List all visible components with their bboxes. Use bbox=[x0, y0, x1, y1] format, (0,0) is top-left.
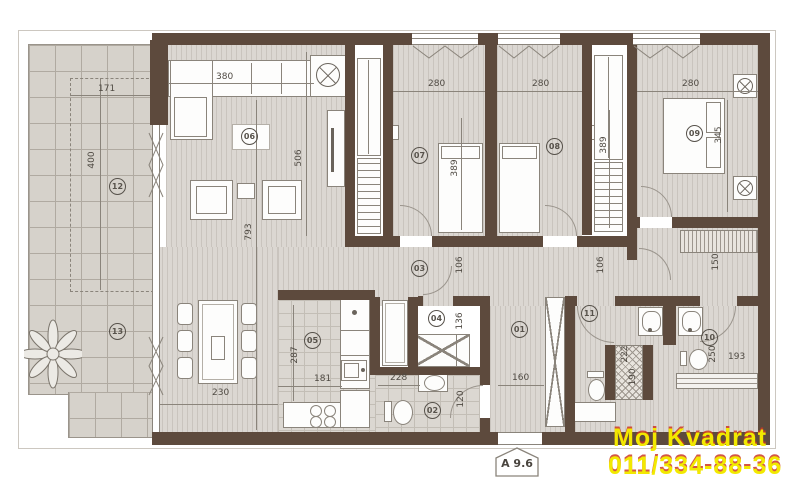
room-number-06: 06 bbox=[241, 128, 258, 145]
dim-287: 287 bbox=[290, 343, 300, 367]
dim-389-room07: 389 bbox=[450, 156, 460, 180]
wall bbox=[345, 45, 355, 247]
dining-table-center bbox=[211, 336, 225, 360]
wall bbox=[370, 297, 380, 368]
dim-793: 793 bbox=[244, 220, 254, 244]
dim-280-room08: 280 bbox=[532, 79, 549, 89]
sofa-divider bbox=[281, 63, 282, 94]
dim-106-corridor: 106 bbox=[455, 253, 465, 277]
wall bbox=[582, 45, 592, 235]
room-number-01: 01 bbox=[511, 321, 528, 338]
wall bbox=[565, 297, 575, 432]
dim-171: 171 bbox=[98, 84, 115, 94]
wall bbox=[152, 33, 412, 45]
wall bbox=[418, 296, 423, 306]
sliding-door-icon bbox=[148, 336, 164, 396]
window-opening-icon bbox=[412, 45, 478, 60]
wall bbox=[370, 367, 488, 375]
kitchen-counter-divider bbox=[341, 355, 369, 356]
wall bbox=[577, 236, 637, 247]
wall bbox=[615, 296, 700, 306]
dim-line bbox=[393, 91, 485, 92]
wall bbox=[637, 217, 640, 228]
dim-120: 120 bbox=[456, 387, 466, 411]
armchair-cushion bbox=[196, 186, 227, 214]
dim-190: 190 bbox=[628, 365, 638, 389]
dim-150: 150 bbox=[711, 250, 721, 274]
room-number-02: 02 bbox=[424, 402, 441, 419]
window-opening-icon bbox=[498, 45, 560, 60]
dim-line bbox=[378, 385, 420, 386]
wall bbox=[737, 296, 770, 306]
dim-106-passage: 106 bbox=[596, 253, 606, 277]
kitchen-corner-unit bbox=[340, 390, 370, 428]
dim-280-room09: 280 bbox=[682, 79, 699, 89]
dim-400: 400 bbox=[87, 148, 97, 172]
wall bbox=[480, 296, 490, 385]
hall-wardrobe bbox=[545, 297, 565, 427]
wall bbox=[643, 345, 653, 400]
dim-line bbox=[256, 100, 257, 430]
dim-line bbox=[158, 404, 278, 405]
dining-chair bbox=[177, 357, 193, 379]
dim-line bbox=[306, 52, 307, 236]
watermark-brand: Moj Kvadrat bbox=[613, 424, 767, 453]
washbasin-dot bbox=[688, 328, 692, 332]
kitchen-sink-basin bbox=[344, 363, 359, 378]
dim-line bbox=[498, 385, 544, 386]
dim-line bbox=[278, 386, 342, 387]
wall bbox=[663, 300, 676, 345]
wc11-toilet-bowl bbox=[588, 379, 605, 401]
dim-136: 136 bbox=[455, 309, 465, 333]
wc11-toilet-tank bbox=[587, 371, 604, 378]
coffee-table bbox=[237, 183, 255, 199]
dim-line bbox=[100, 78, 101, 290]
wall bbox=[485, 45, 497, 247]
room-number-13: 13 bbox=[109, 323, 126, 340]
dim-345: 345 bbox=[714, 123, 724, 147]
dim-389-wardrobe: 389 bbox=[599, 133, 609, 157]
kitchen-faucet-dot bbox=[361, 368, 365, 372]
wc10-toilet-tank bbox=[680, 351, 687, 366]
dim-230: 230 bbox=[212, 388, 229, 398]
room-number-12: 12 bbox=[109, 178, 126, 195]
room-number-07: 07 bbox=[411, 147, 428, 164]
stove-burner bbox=[310, 416, 322, 428]
window-opening-icon bbox=[633, 45, 700, 60]
watermark-phone: 011/334-88-36 bbox=[608, 452, 782, 481]
wall bbox=[478, 33, 498, 45]
terrace-floor-lower bbox=[68, 392, 154, 438]
wall bbox=[408, 297, 418, 368]
shower-tray bbox=[676, 373, 758, 389]
dim-280-room07: 280 bbox=[428, 79, 445, 89]
bath11-cabinet bbox=[568, 402, 616, 422]
dim-line bbox=[168, 83, 314, 84]
wardrobe-shelves bbox=[357, 158, 381, 234]
window bbox=[412, 33, 478, 45]
window bbox=[498, 33, 560, 45]
entrance-door-opening bbox=[498, 432, 542, 445]
wall bbox=[383, 45, 393, 247]
floor-plan: 171 400 380 280 280 280 506 793 389 389 … bbox=[0, 0, 800, 498]
room-number-09: 09 bbox=[686, 125, 703, 142]
bathtub-divider bbox=[456, 334, 457, 367]
dim-line bbox=[727, 100, 728, 212]
shower-cabin-inner bbox=[385, 303, 405, 363]
dining-chair bbox=[241, 330, 257, 352]
dim-line bbox=[609, 110, 610, 228]
dining-chair bbox=[241, 357, 257, 379]
dining-chair bbox=[177, 330, 193, 352]
wall bbox=[150, 40, 168, 125]
kitchen-hob-dot bbox=[352, 310, 357, 315]
window-glazing-line bbox=[498, 38, 560, 39]
dim-160: 160 bbox=[512, 373, 529, 383]
window bbox=[633, 33, 700, 45]
dim-line bbox=[637, 91, 758, 92]
dim-506: 506 bbox=[294, 146, 304, 170]
wall bbox=[672, 217, 770, 228]
apartment-badge-label: A 9.6 bbox=[494, 457, 540, 470]
wc10-toilet-bowl bbox=[689, 349, 708, 370]
tv-icon bbox=[331, 128, 334, 172]
tv-board bbox=[327, 110, 345, 187]
sliding-door-icon bbox=[148, 132, 164, 198]
sofa-divider bbox=[251, 63, 252, 94]
wardrobe-rod bbox=[368, 60, 369, 154]
kitchen-counter-divider bbox=[341, 330, 369, 331]
dim-line bbox=[461, 118, 462, 230]
wall bbox=[560, 33, 633, 45]
wall bbox=[152, 432, 498, 445]
wall bbox=[605, 345, 615, 400]
room-number-03: 03 bbox=[411, 260, 428, 277]
wall bbox=[345, 236, 400, 247]
dim-line bbox=[70, 95, 152, 96]
dim-222: 222 bbox=[620, 342, 630, 366]
wall bbox=[453, 296, 480, 306]
dim-line bbox=[497, 91, 590, 92]
room-number-05: 05 bbox=[304, 332, 321, 349]
wall bbox=[480, 418, 490, 432]
sofa-seat-cushion bbox=[174, 97, 207, 137]
bed-pillow bbox=[502, 146, 537, 159]
wall bbox=[627, 45, 637, 260]
washbasin-dot bbox=[648, 328, 652, 332]
dim-228: 228 bbox=[390, 373, 407, 383]
wall bbox=[278, 290, 375, 300]
wall bbox=[432, 236, 543, 247]
armchair-cushion bbox=[268, 186, 296, 214]
room-number-10: 10 bbox=[701, 329, 718, 346]
wc02-toilet-tank bbox=[384, 401, 392, 422]
stove-burner bbox=[324, 416, 336, 428]
wc02-toilet-bowl bbox=[393, 400, 413, 425]
window-glazing-line bbox=[412, 38, 478, 39]
dining-chair bbox=[241, 303, 257, 325]
wall bbox=[758, 33, 770, 445]
dim-193: 193 bbox=[728, 352, 745, 362]
wc02-sink-basin bbox=[424, 375, 445, 391]
wardrobe bbox=[357, 58, 381, 156]
room-number-04: 04 bbox=[428, 310, 445, 327]
dim-380: 380 bbox=[216, 72, 233, 82]
room-number-08: 08 bbox=[546, 138, 563, 155]
window-glazing-line bbox=[633, 38, 700, 39]
bathtub bbox=[414, 334, 470, 367]
plant-icon bbox=[24, 314, 82, 394]
dining-chair bbox=[177, 303, 193, 325]
dim-181: 181 bbox=[314, 374, 331, 384]
room-number-11: 11 bbox=[581, 305, 598, 322]
